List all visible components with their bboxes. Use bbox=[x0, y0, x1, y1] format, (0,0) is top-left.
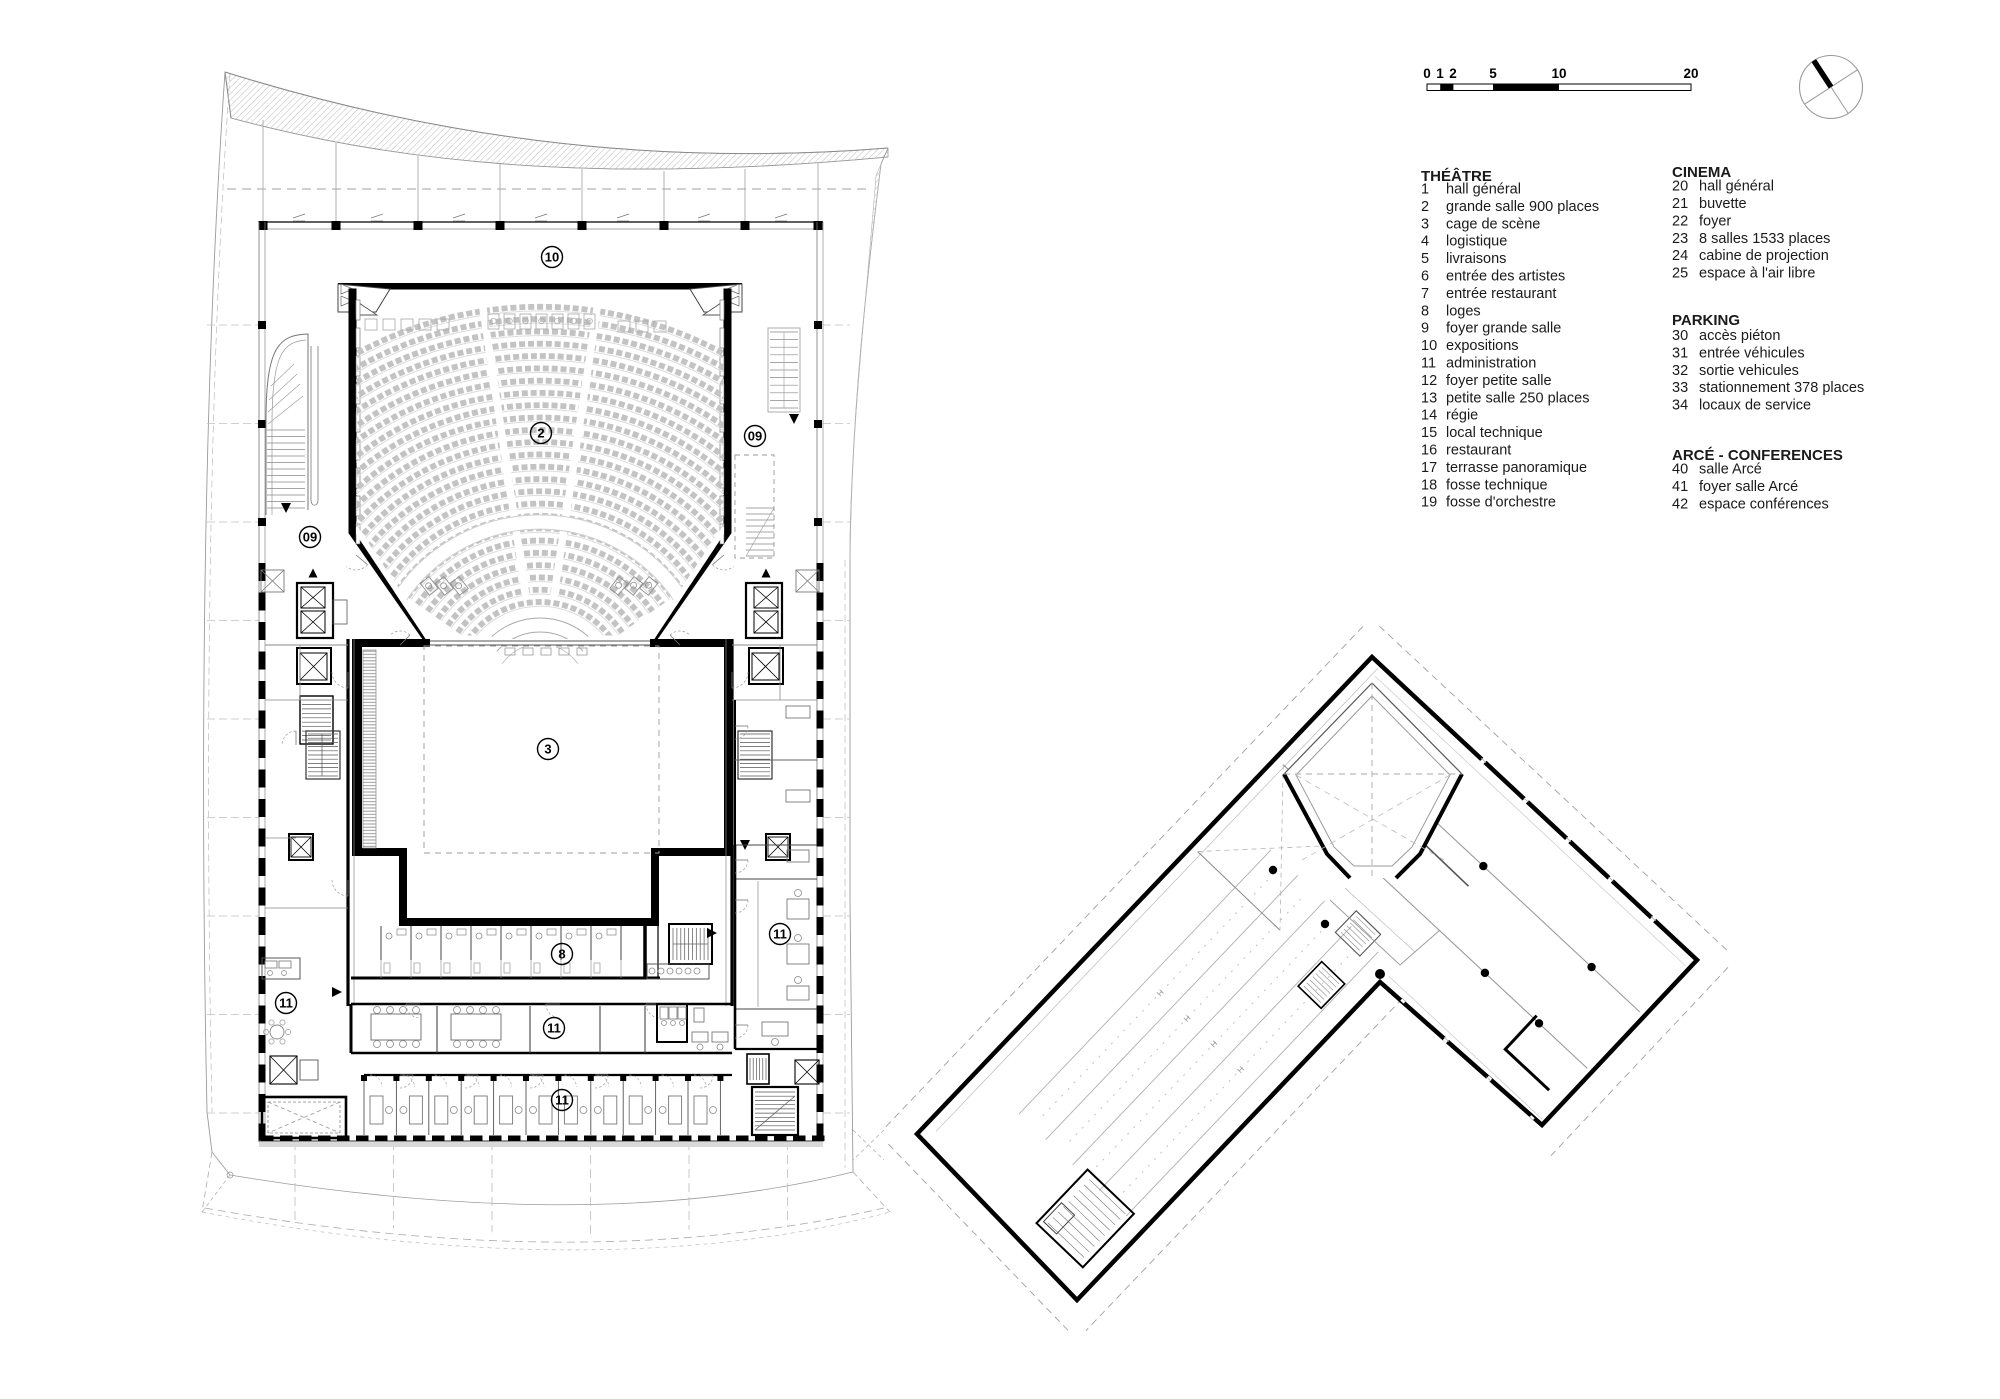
svg-text:10: 10 bbox=[1551, 66, 1566, 81]
svg-text:restaurant: restaurant bbox=[1446, 443, 1511, 459]
svg-text:entrée véhicules: entrée véhicules bbox=[1699, 345, 1805, 361]
svg-text:foyer petite salle: foyer petite salle bbox=[1446, 373, 1552, 389]
svg-text:foyer grande salle: foyer grande salle bbox=[1446, 321, 1561, 337]
svg-text:hall général: hall général bbox=[1699, 179, 1774, 195]
svg-text:terrasse panoramique: terrasse panoramique bbox=[1446, 460, 1587, 476]
svg-text:41: 41 bbox=[1672, 479, 1688, 495]
svg-text:1: 1 bbox=[1436, 66, 1444, 81]
svg-text:local technique: local technique bbox=[1446, 425, 1543, 441]
svg-text:espace conférences: espace conférences bbox=[1699, 496, 1829, 512]
svg-text:25: 25 bbox=[1672, 266, 1688, 282]
svg-text:20: 20 bbox=[1672, 179, 1688, 195]
svg-text:0: 0 bbox=[1423, 66, 1431, 81]
svg-text:salle Arcé: salle Arcé bbox=[1699, 462, 1762, 478]
svg-text:40: 40 bbox=[1672, 462, 1688, 478]
svg-text:stationnement 378 places: stationnement 378 places bbox=[1699, 380, 1864, 396]
svg-text:fosse technique: fosse technique bbox=[1446, 477, 1548, 493]
svg-text:11: 11 bbox=[547, 1021, 561, 1036]
svg-text:10: 10 bbox=[1421, 338, 1437, 354]
svg-text:sortie vehicules: sortie vehicules bbox=[1699, 363, 1799, 379]
svg-text:24: 24 bbox=[1672, 248, 1688, 264]
svg-text:31: 31 bbox=[1672, 345, 1688, 361]
svg-text:5: 5 bbox=[1421, 251, 1429, 267]
svg-text:8 salles 1533 places: 8 salles 1533 places bbox=[1699, 231, 1830, 247]
svg-text:33: 33 bbox=[1672, 380, 1688, 396]
svg-text:11: 11 bbox=[279, 996, 293, 1011]
svg-text:foyer salle Arcé: foyer salle Arcé bbox=[1699, 479, 1798, 495]
svg-text:2: 2 bbox=[1421, 199, 1429, 215]
svg-text:buvette: buvette bbox=[1699, 196, 1747, 212]
svg-text:4: 4 bbox=[1421, 234, 1429, 250]
svg-text:PARKING: PARKING bbox=[1672, 312, 1740, 329]
svg-text:hall général: hall général bbox=[1446, 182, 1521, 198]
svg-text:cage de scène: cage de scène bbox=[1446, 216, 1540, 232]
svg-text:19: 19 bbox=[1421, 495, 1437, 511]
svg-text:23: 23 bbox=[1672, 231, 1688, 247]
svg-text:17: 17 bbox=[1421, 460, 1437, 476]
svg-text:2: 2 bbox=[1449, 66, 1457, 81]
svg-text:22: 22 bbox=[1672, 213, 1688, 229]
svg-text:régie: régie bbox=[1446, 408, 1478, 424]
svg-text:6: 6 bbox=[1421, 269, 1429, 285]
svg-text:12: 12 bbox=[1421, 373, 1437, 389]
svg-text:administration: administration bbox=[1446, 356, 1536, 372]
svg-text:loges: loges bbox=[1446, 303, 1481, 319]
svg-text:34: 34 bbox=[1672, 398, 1688, 414]
svg-text:11: 11 bbox=[555, 1093, 569, 1108]
svg-text:42: 42 bbox=[1672, 496, 1688, 512]
svg-text:09: 09 bbox=[748, 429, 762, 444]
svg-text:fosse d'orchestre: fosse d'orchestre bbox=[1446, 495, 1556, 511]
svg-text:09: 09 bbox=[303, 530, 317, 545]
svg-text:livraisons: livraisons bbox=[1446, 251, 1506, 267]
svg-text:locaux de service: locaux de service bbox=[1699, 398, 1811, 414]
svg-text:accès piéton: accès piéton bbox=[1699, 328, 1780, 344]
svg-text:20: 20 bbox=[1683, 66, 1698, 81]
svg-text:32: 32 bbox=[1672, 363, 1688, 379]
svg-text:14: 14 bbox=[1421, 408, 1437, 424]
svg-text:5: 5 bbox=[1489, 66, 1497, 81]
svg-text:8: 8 bbox=[1421, 303, 1429, 319]
svg-text:petite salle 250 places: petite salle 250 places bbox=[1446, 390, 1590, 406]
svg-text:3: 3 bbox=[544, 742, 551, 757]
svg-text:entrée restaurant: entrée restaurant bbox=[1446, 286, 1556, 302]
svg-text:11: 11 bbox=[1421, 356, 1436, 372]
svg-text:7: 7 bbox=[1421, 286, 1429, 302]
svg-text:9: 9 bbox=[1421, 321, 1429, 337]
svg-text:logistique: logistique bbox=[1446, 234, 1507, 250]
svg-text:11: 11 bbox=[773, 927, 787, 942]
svg-text:16: 16 bbox=[1421, 443, 1437, 459]
svg-text:15: 15 bbox=[1421, 425, 1437, 441]
svg-text:foyer: foyer bbox=[1699, 213, 1731, 229]
svg-text:10: 10 bbox=[545, 250, 559, 265]
svg-text:1: 1 bbox=[1421, 182, 1429, 198]
svg-text:3: 3 bbox=[1421, 216, 1429, 232]
svg-text:cabine de projection: cabine de projection bbox=[1699, 248, 1829, 264]
svg-text:30: 30 bbox=[1672, 328, 1688, 344]
svg-text:21: 21 bbox=[1672, 196, 1688, 212]
svg-text:13: 13 bbox=[1421, 390, 1437, 406]
svg-text:2: 2 bbox=[537, 426, 544, 441]
svg-text:espace à l'air libre: espace à l'air libre bbox=[1699, 266, 1815, 282]
svg-text:18: 18 bbox=[1421, 477, 1437, 493]
svg-text:expositions: expositions bbox=[1446, 338, 1519, 354]
svg-text:grande salle 900 places: grande salle 900 places bbox=[1446, 199, 1599, 215]
svg-text:entrée des artistes: entrée des artistes bbox=[1446, 269, 1565, 285]
svg-text:8: 8 bbox=[558, 947, 565, 962]
